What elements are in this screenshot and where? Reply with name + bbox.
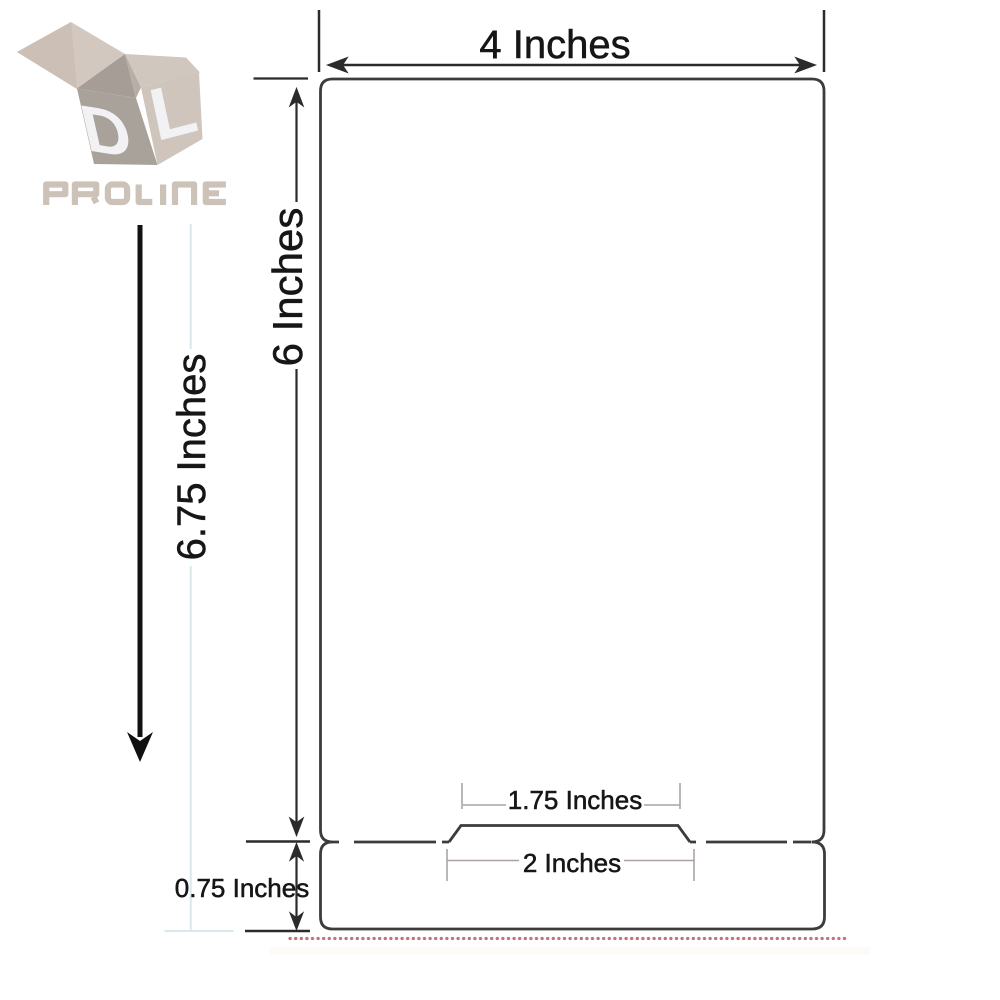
- svg-text:6 Inches: 6 Inches: [264, 208, 311, 367]
- svg-text:6.75 Inches: 6.75 Inches: [170, 354, 214, 561]
- svg-text:2 Inches: 2 Inches: [523, 848, 621, 878]
- svg-text:4 Inches: 4 Inches: [479, 23, 630, 67]
- svg-text:0.75 Inches: 0.75 Inches: [175, 873, 309, 903]
- svg-text:1.75 Inches: 1.75 Inches: [508, 785, 642, 815]
